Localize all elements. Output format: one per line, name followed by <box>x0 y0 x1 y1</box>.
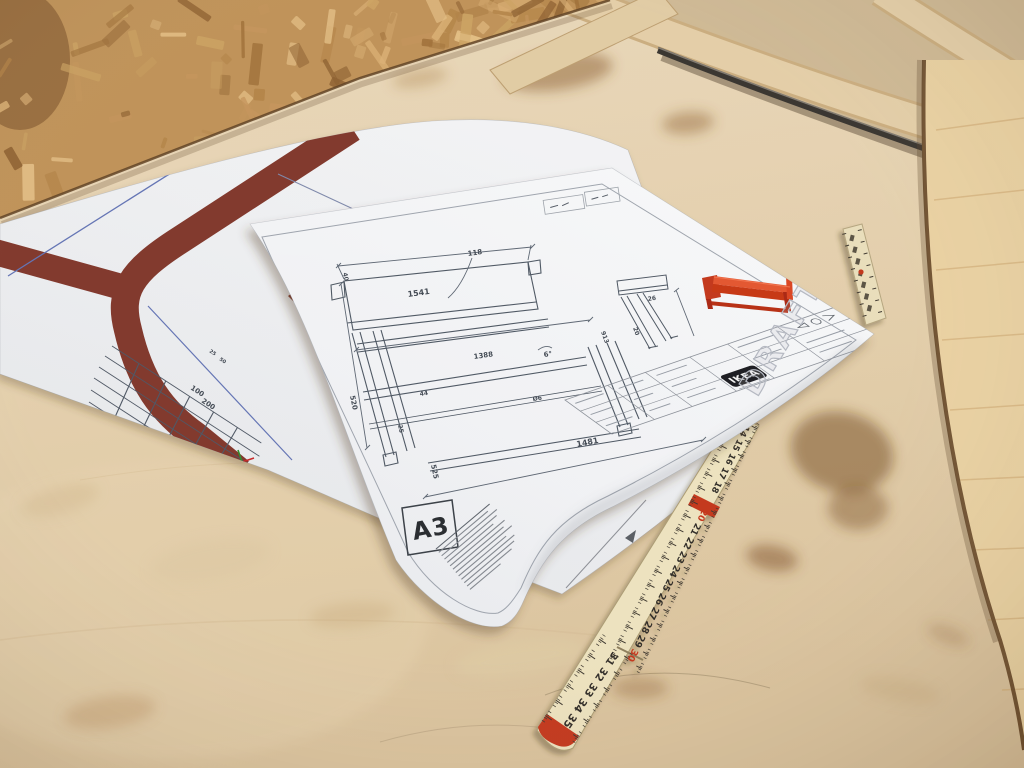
photo-vignette <box>0 0 1024 768</box>
photo-scene: 2550100200 14151617182021222324252627282… <box>0 0 1024 768</box>
scene-canvas: 2550100200 14151617182021222324252627282… <box>0 0 1024 768</box>
